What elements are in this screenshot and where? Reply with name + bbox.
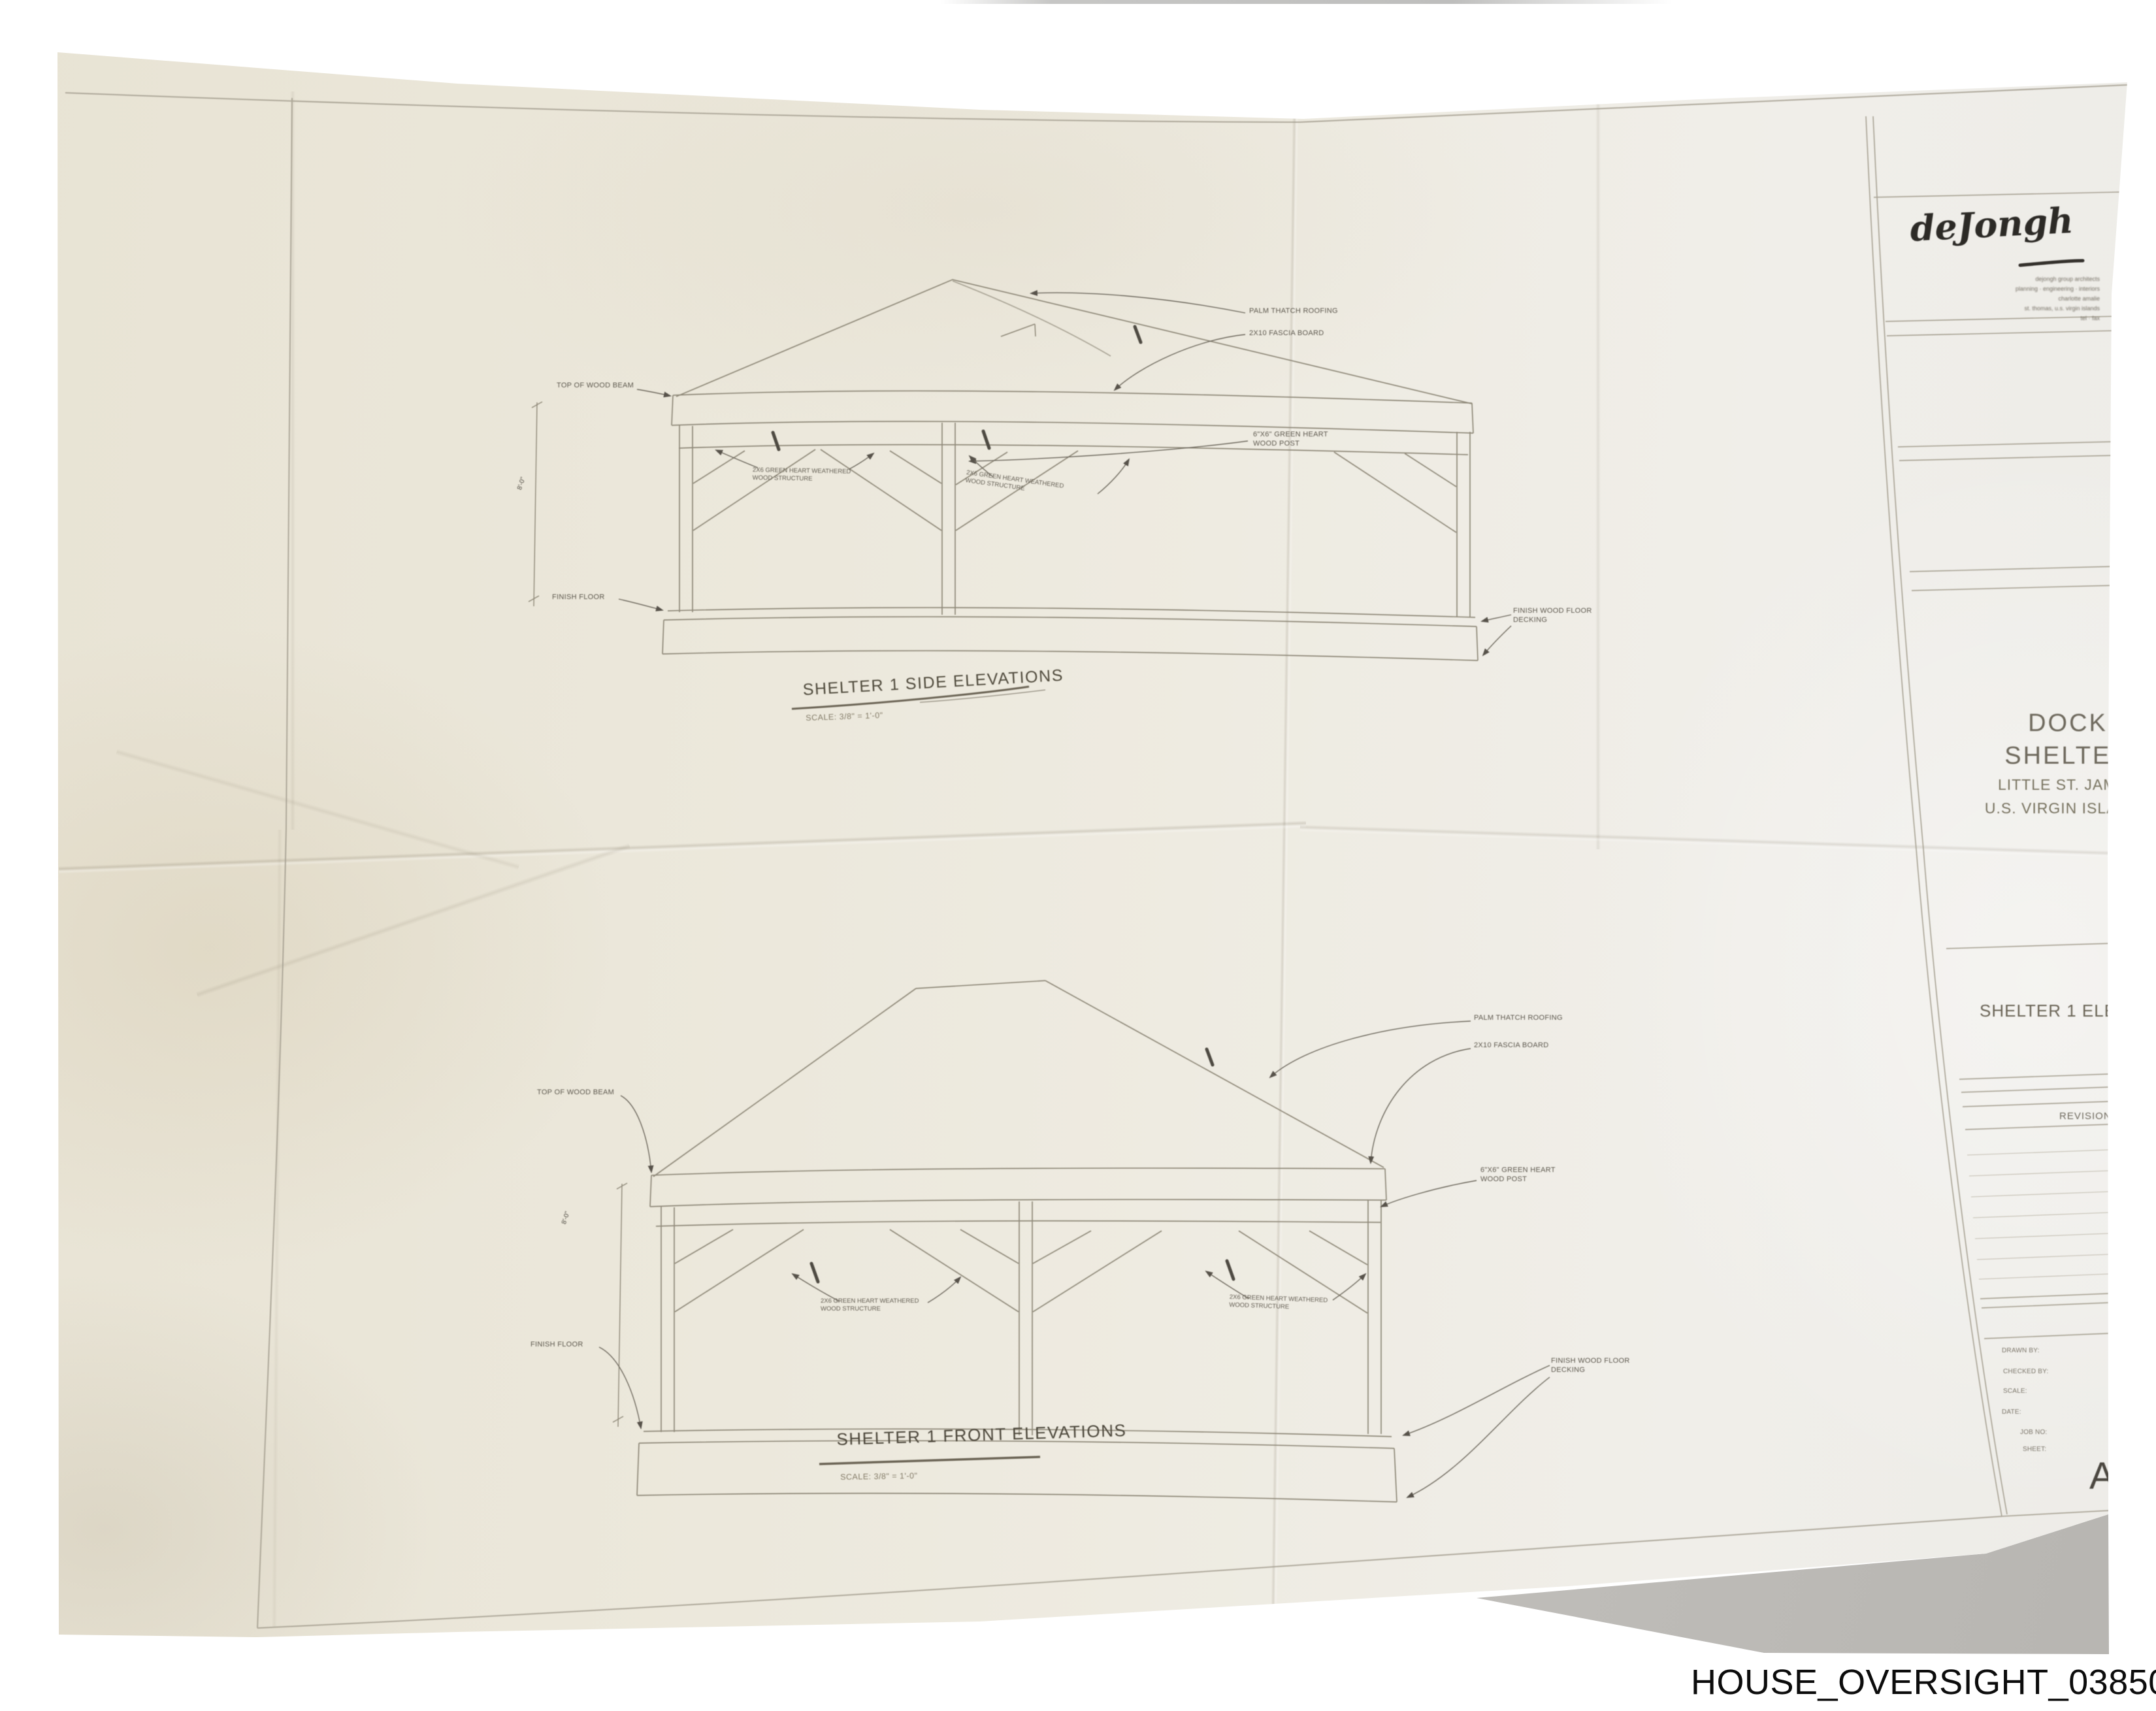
side-label-finish-floor: FINISH FLOOR — [552, 593, 605, 601]
drawing-sheet: TOP OF WOOD BEAM FINISH FLOOR 8'-0" 2X6 … — [0, 0, 2156, 1711]
front-elevation-scale-note: SCALE: 3/8" = 1'-0" — [840, 1471, 918, 1482]
title-underlines — [792, 687, 1045, 1464]
sheet-content: TOP OF WOOD BEAM FINISH FLOOR 8'-0" 2X6 … — [0, 0, 2156, 1711]
side-elevation-linework — [529, 280, 1478, 660]
credit-date: DATE: — [2002, 1409, 2021, 1416]
address-line: st. thomas, u.s. virgin islands — [1980, 304, 2100, 314]
front-label-fascia-board: 2X10 FASCIA BOARD — [1474, 1041, 1549, 1049]
label-line: 2X6 GREEN HEART WEATHERED — [821, 1297, 919, 1305]
project-location-line: LITTLE ST. JAMES — [1960, 776, 2156, 794]
front-label-deck: FINISH WOOD FLOOR DECKING — [1551, 1356, 1630, 1375]
front-label-structure-bay1: 2X6 GREEN HEART WEATHERED WOOD STRUCTURE — [821, 1297, 919, 1313]
label-line: FINISH WOOD FLOOR — [1551, 1356, 1630, 1365]
label-line: DECKING — [1513, 615, 1592, 625]
label-line: 6"X6" GREEN HEART — [1253, 430, 1328, 439]
side-label-top-of-beam: TOP OF WOOD BEAM — [557, 382, 634, 389]
label-line: WOOD POST — [1253, 439, 1328, 448]
house-oversight-watermark: HOUSE_OVERSIGHT_038505 — [1691, 1662, 2156, 1703]
credit-drawn-by: DRAWN BY: — [2002, 1347, 2040, 1354]
credit-sheet: SHEET: — [2023, 1446, 2046, 1453]
side-label-deck: FINISH WOOD FLOOR DECKING — [1513, 606, 1592, 625]
address-line: planning · engineering · interiors — [1980, 284, 2100, 294]
logo-address-block: dejongh group architects planning · engi… — [1980, 274, 2100, 323]
revisions-header: REVISIONS — [2059, 1111, 2119, 1122]
project-title-block: DOCK SHELTER LITTLE ST. JAMES U.S. VIRGI… — [1960, 709, 2156, 827]
side-label-structure-bay1: 2X6 GREEN HEART WEATHERED WOOD STRUCTURE — [753, 466, 851, 484]
side-label-palm-thatch: PALM THATCH ROOFING — [1249, 307, 1338, 315]
label-line: FINISH WOOD FLOOR — [1513, 606, 1592, 615]
front-label-finish-floor: FINISH FLOOR — [531, 1341, 583, 1348]
label-line: 6"X6" GREEN HEART — [1480, 1165, 1556, 1175]
project-location-line: U.S. VIRGIN ISLANDS — [1960, 800, 2156, 817]
sheet-border-lines — [65, 85, 2127, 1628]
credit-checked-by: CHECKED BY: — [2003, 1368, 2048, 1375]
drawing-linework — [0, 0, 2156, 1711]
project-title-line: DOCK — [1960, 709, 2156, 738]
side-label-wood-post: 6"X6" GREEN HEART WOOD POST — [1253, 430, 1328, 448]
label-line: DECKING — [1551, 1365, 1630, 1375]
label-line: WOOD STRUCTURE — [821, 1305, 919, 1313]
address-line: tel · fax — [1980, 314, 2100, 323]
photo-of-architectural-drawing: TOP OF WOOD BEAM FINISH FLOOR 8'-0" 2X6 … — [0, 0, 2156, 1711]
revisions-ruled-lines — [1967, 1150, 2109, 1279]
front-label-top-of-beam: TOP OF WOOD BEAM — [537, 1088, 614, 1096]
label-line: WOOD POST — [1480, 1175, 1556, 1184]
front-label-palm-thatch: PALM THATCH ROOFING — [1474, 1014, 1563, 1022]
address-line: dejongh group architects — [1980, 274, 2100, 284]
photo-edge-artifact — [941, 0, 1673, 4]
address-line: charlotte amalie — [1980, 294, 2100, 304]
dejongh-logo-signature: deJongh — [1909, 199, 2074, 250]
credit-job-no: JOB NO: — [2020, 1429, 2047, 1436]
front-label-wood-post: 6"X6" GREEN HEART WOOD POST — [1480, 1165, 1556, 1184]
sheet-title: SHELTER 1 ELEVATIONS — [1980, 1001, 2156, 1021]
project-title-line: SHELTER — [1960, 742, 2156, 770]
credit-scale: SCALE: — [2003, 1388, 2027, 1395]
side-label-fascia-board: 2X10 FASCIA BOARD — [1249, 329, 1324, 337]
sheet-number-letter: A — [2089, 1454, 2115, 1498]
logo-signature-swash — [2020, 261, 2083, 265]
